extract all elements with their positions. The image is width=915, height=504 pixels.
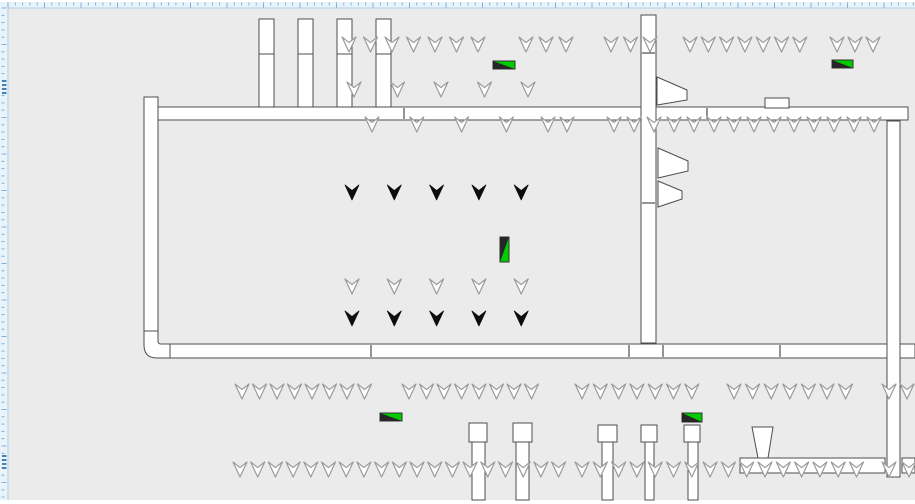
drawing-surface	[0, 0, 915, 504]
column-bottom-segment[interactable]	[376, 54, 391, 107]
column-cap[interactable]	[684, 425, 700, 442]
column-cap[interactable]	[598, 425, 617, 442]
column-cap[interactable]	[469, 423, 487, 442]
wall-right-wall[interactable]	[887, 121, 900, 477]
app-window	[0, 0, 915, 504]
wall-top-wall[interactable]	[158, 107, 908, 120]
column-cap[interactable]	[641, 425, 657, 442]
left-ruler-position-marker	[2, 92, 7, 94]
top-ruler	[0, 2, 915, 8]
wall-door-block[interactable]	[765, 98, 789, 108]
column-top-segment[interactable]	[259, 19, 274, 54]
column-bottom-segment[interactable]	[337, 54, 352, 107]
wall-center-wall[interactable]	[641, 15, 656, 343]
column-bottom-segment[interactable]	[259, 54, 274, 107]
column-top-segment[interactable]	[376, 19, 391, 54]
wall-left-wall[interactable]	[144, 97, 158, 332]
column-cap[interactable]	[513, 423, 532, 442]
wall-bottom-wall[interactable]	[170, 344, 915, 358]
left-ruler	[0, 2, 8, 500]
column-top-segment[interactable]	[298, 19, 313, 54]
column-bottom-segment[interactable]	[298, 54, 313, 107]
left-ruler-position-marker	[2, 80, 7, 82]
left-ruler-position-marker	[2, 84, 7, 86]
column-shaft[interactable]	[472, 442, 485, 500]
left-ruler-position-marker	[2, 467, 7, 469]
left-ruler-position-marker	[2, 88, 7, 90]
left-ruler-position-marker	[2, 463, 7, 465]
left-ruler-position-marker	[2, 459, 7, 461]
left-ruler-position-marker	[2, 455, 7, 457]
